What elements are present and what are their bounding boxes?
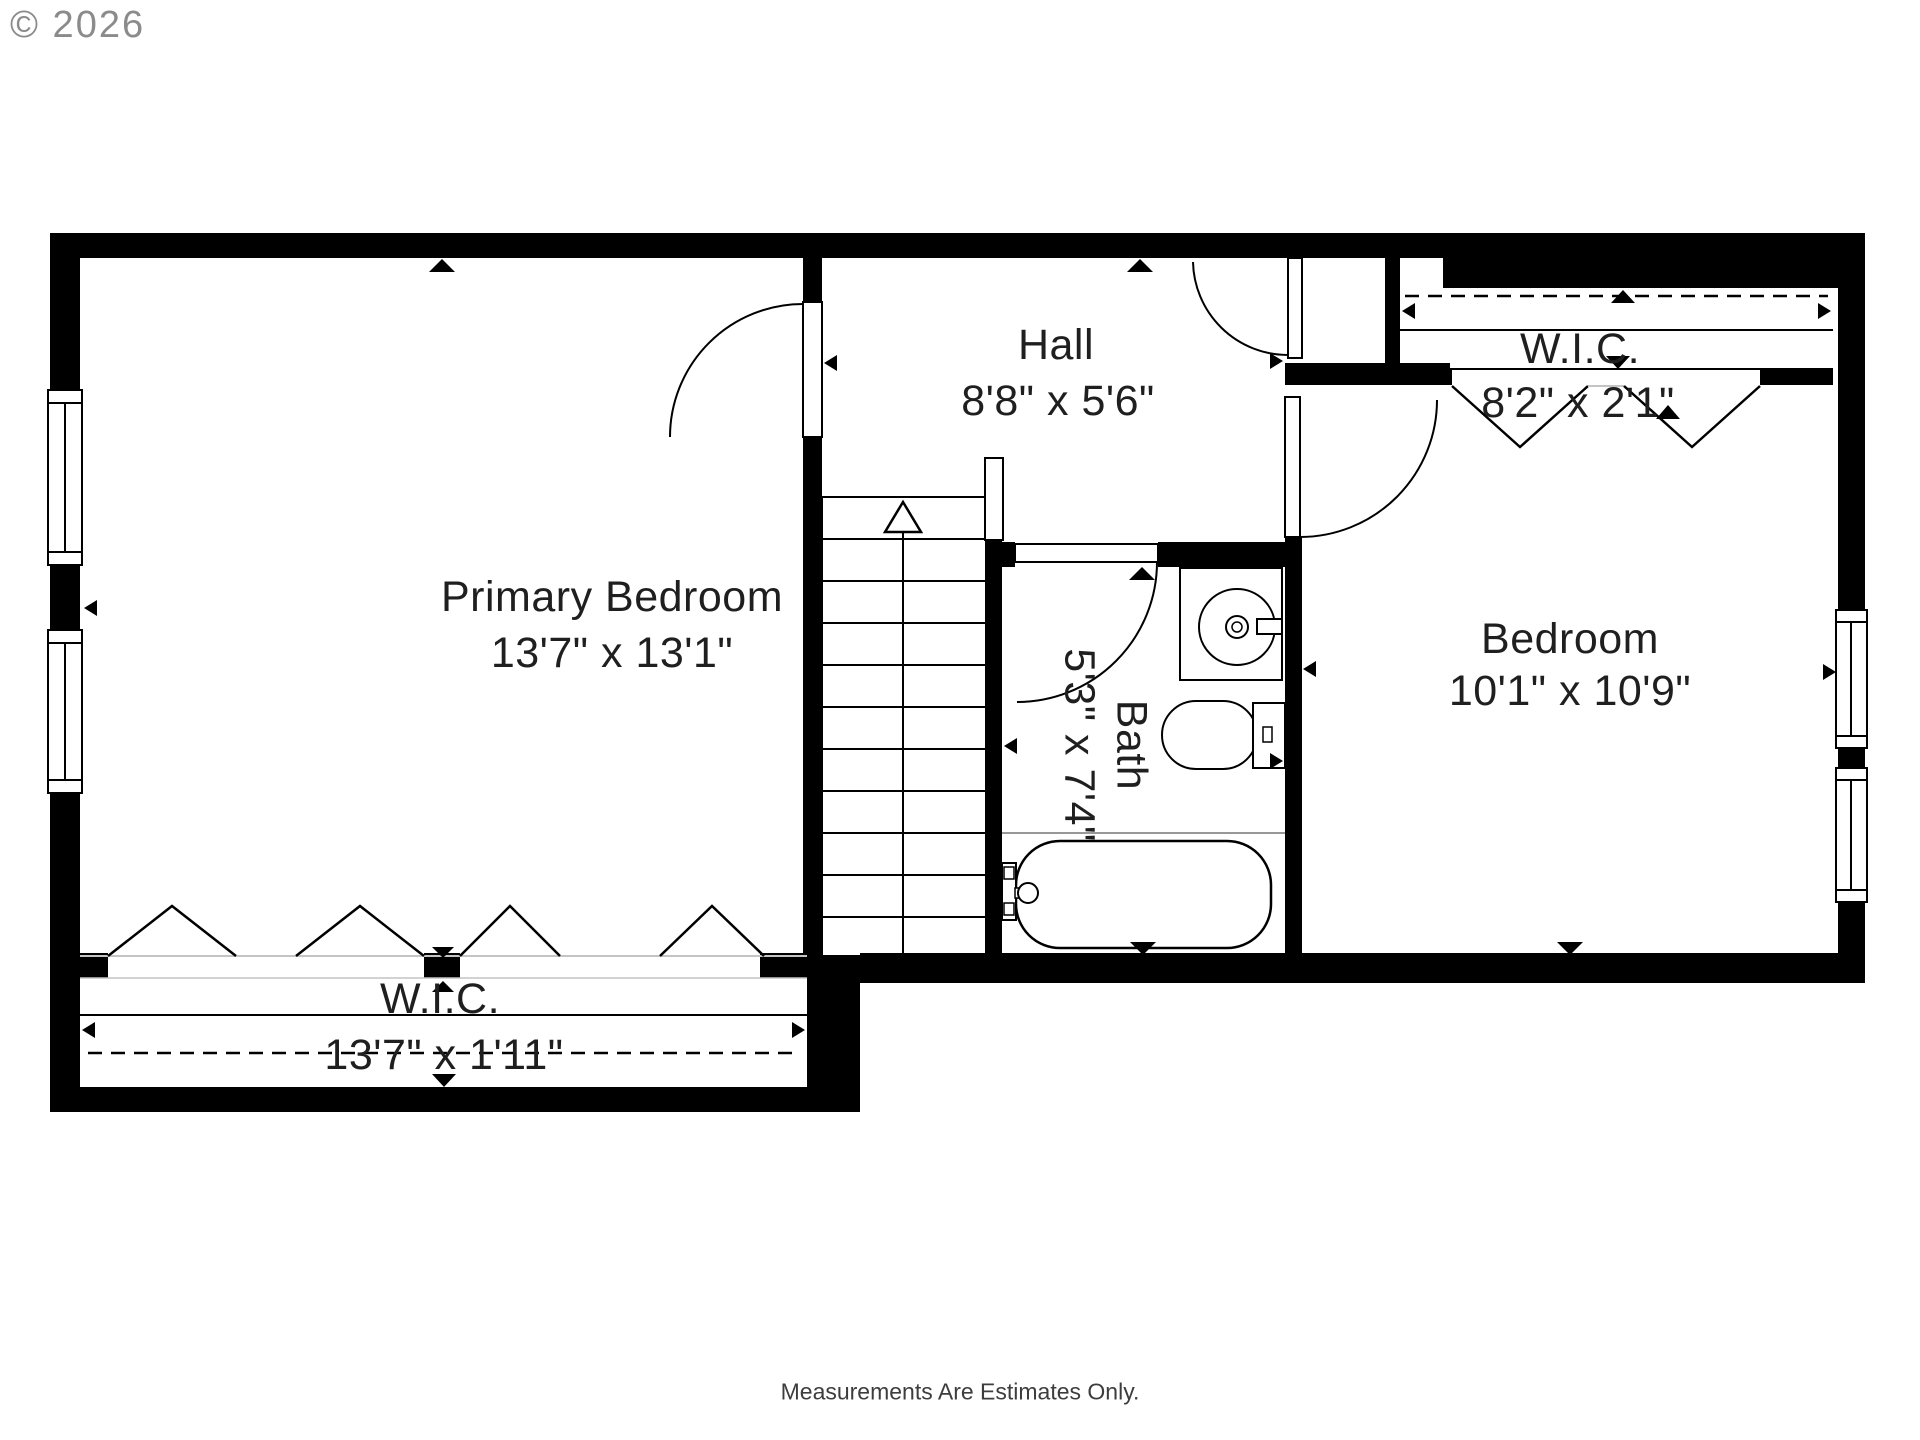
door-primary-bedroom <box>670 302 822 437</box>
room-dimensions-hall: 8'8" x 5'6" <box>961 376 1155 428</box>
bifold-door <box>660 906 764 956</box>
wall-nook-right <box>1385 258 1400 363</box>
room-label-wic-lower: W.I.C. <box>380 974 500 1026</box>
room-dimensions-primary-bedroom: 13'7" x 13'1" <box>491 628 733 680</box>
arrow-left-icon <box>82 1022 95 1038</box>
wall-bath-bedroom-divider <box>1285 537 1302 955</box>
stair-railing-post <box>985 458 1003 540</box>
door-bedroom <box>1285 397 1437 537</box>
arrow-right-icon <box>792 1022 805 1038</box>
room-label-bath-group: Bath 5'3" x 7'4" <box>1053 648 1156 842</box>
room-label-primary-bedroom: Primary Bedroom <box>441 572 783 624</box>
sink-fixture <box>1180 568 1282 680</box>
door-hall-closet <box>1193 258 1302 358</box>
arrow-right-icon <box>1823 664 1836 680</box>
wall-left-block-right <box>807 955 860 1112</box>
arrow-left-icon <box>84 600 97 616</box>
bathtub-fixture <box>1002 841 1271 948</box>
wall-wic-upper-top-band <box>1443 258 1865 288</box>
arrow-left-icon <box>1004 738 1017 754</box>
arrow-right-icon <box>1818 303 1831 319</box>
floor-plan-page: { "meta": { "copyright": "© 2026", "disc… <box>0 0 1920 1440</box>
wall-wic-upper-stub-right <box>1760 368 1833 385</box>
wall-bottom-left <box>50 1087 860 1112</box>
arrow-left-icon <box>1303 661 1316 677</box>
wall-bottom-middle <box>860 953 1865 983</box>
window <box>48 630 82 793</box>
wall-top <box>50 233 1865 258</box>
room-label-bath: Bath <box>1105 648 1157 842</box>
bifold-door <box>460 906 560 956</box>
arrow-left-icon <box>1402 303 1415 319</box>
room-label-bedroom: Bedroom <box>1481 614 1659 666</box>
arrow-up-icon <box>1129 567 1155 580</box>
bifold-door <box>296 906 424 956</box>
bifold-door <box>108 906 236 956</box>
room-dimensions-bath: 5'3" x 7'4" <box>1053 648 1105 842</box>
wall-bath-top-a <box>1002 542 1015 567</box>
wall-hall-divider <box>803 437 822 955</box>
room-dimensions-wic-lower: 13'7" x 1'11" <box>324 1030 563 1082</box>
arrow-left-icon <box>824 355 837 371</box>
window <box>1836 610 1867 748</box>
stair-up-arrow-icon <box>885 502 921 532</box>
arrow-up-icon <box>1127 259 1153 272</box>
disclaimer-text: Measurements Are Estimates Only. <box>781 1379 1140 1406</box>
copyright-text: © 2026 <box>10 4 145 47</box>
window <box>48 390 82 565</box>
wall-hall-divider-stub <box>803 258 822 302</box>
arrow-up-icon <box>429 259 455 272</box>
wall-stair-bath-divider <box>985 540 1002 955</box>
stairs <box>822 458 1003 955</box>
wall-bath-top-b <box>1158 542 1285 567</box>
room-label-wic-upper: W.I.C. <box>1520 324 1640 376</box>
toilet-fixture <box>1162 701 1285 769</box>
floor-plan-drawing <box>0 0 1920 1440</box>
room-dimensions-bedroom: 10'1" x 10'9" <box>1449 666 1691 718</box>
window <box>1836 768 1867 902</box>
room-label-hall: Hall <box>1018 320 1094 372</box>
wall-wic-upper-stub-left <box>1400 368 1452 385</box>
room-dimensions-wic-upper: 8'2" x 2'1" <box>1481 378 1675 430</box>
